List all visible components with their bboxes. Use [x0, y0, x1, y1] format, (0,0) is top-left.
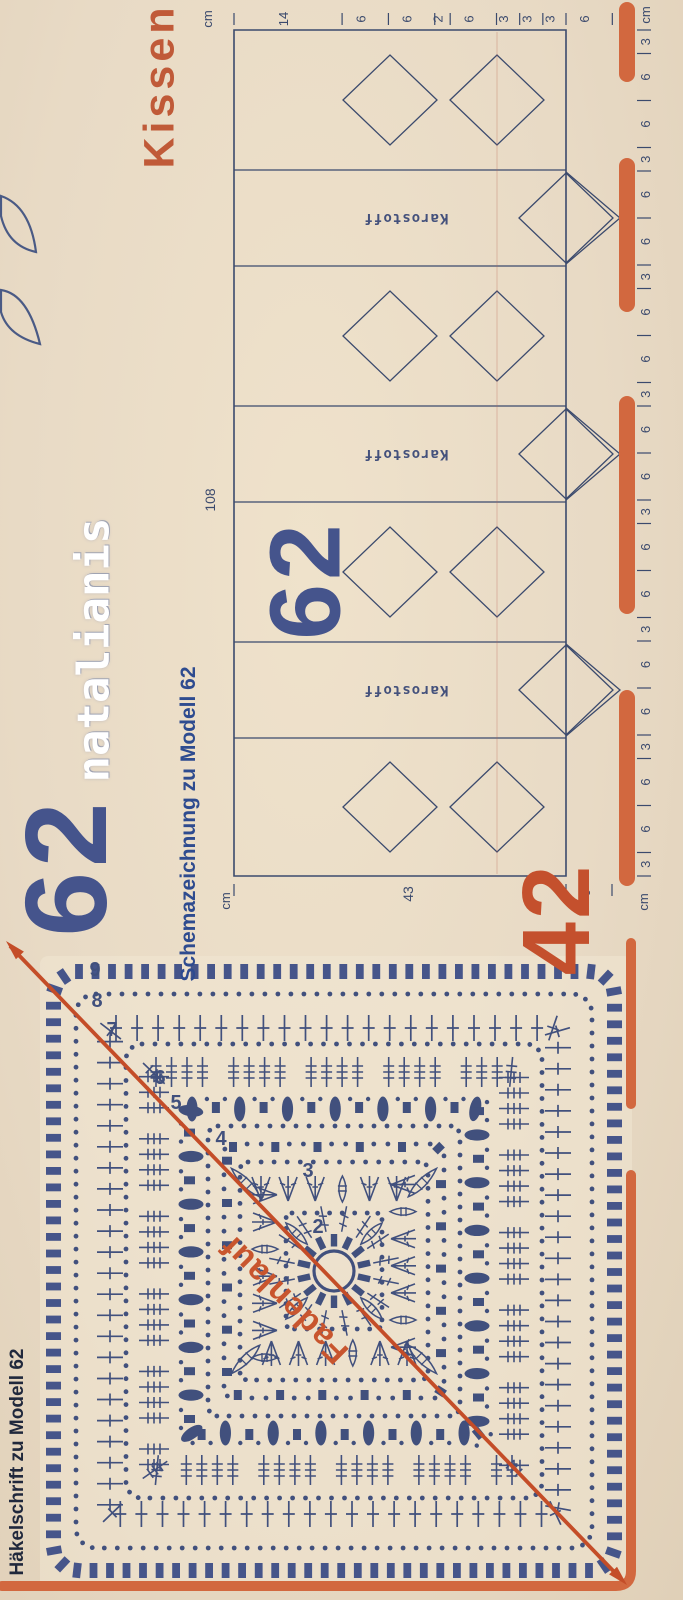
- stitch-symbol: [442, 1154, 447, 1159]
- stitch-symbol: [124, 1195, 129, 1200]
- stitch-symbol: [74, 1143, 79, 1148]
- stitch-symbol: [380, 1305, 385, 1310]
- stitch-symbol: [74, 1403, 79, 1408]
- stitch-symbol: [294, 1124, 299, 1129]
- stitch-symbol: [179, 1246, 204, 1257]
- ruler-label: 6: [638, 355, 653, 362]
- ruler-label: 6: [353, 15, 368, 22]
- stitch-symbol: [238, 1306, 243, 1311]
- stitch-symbol: [590, 1459, 595, 1464]
- stitch-symbol: [74, 1039, 79, 1044]
- stitch-symbol: [433, 1496, 438, 1501]
- stitch-symbol: [359, 1124, 364, 1129]
- stitch-symbol: [590, 1511, 595, 1516]
- stitch-symbol: [405, 964, 413, 979]
- stitch-symbol: [46, 1217, 61, 1225]
- stitch-symbol: [458, 1361, 463, 1366]
- stitch-symbol: [590, 1485, 595, 1490]
- stitch-symbol: [458, 1140, 463, 1145]
- stitch-symbol: [458, 1244, 463, 1249]
- stitch-symbol: [329, 1142, 334, 1147]
- stitch-symbol: [426, 1277, 431, 1282]
- stitch-symbol: [74, 1221, 79, 1226]
- stitch-symbol: [455, 964, 463, 979]
- stitch-symbol: [237, 992, 242, 997]
- stitch-symbol: [540, 1304, 545, 1309]
- ruler-label: 2: [430, 15, 445, 22]
- stitch-symbol: [253, 1414, 258, 1419]
- stitch-symbol: [365, 1211, 370, 1216]
- stitch-symbol: [431, 992, 436, 997]
- stitch-symbol: [74, 1507, 79, 1512]
- stitch-symbol: [590, 1381, 595, 1386]
- ruler-label: 43: [400, 886, 416, 902]
- ruler-label: 3: [638, 861, 653, 868]
- stitch-symbol: [442, 1196, 447, 1201]
- stitch-symbol: [303, 1496, 308, 1501]
- stitch-symbol: [383, 1414, 388, 1419]
- stitch-symbol: [222, 1299, 227, 1304]
- stitch-symbol: [590, 1433, 595, 1438]
- stitch-symbol: [323, 1546, 328, 1551]
- stitch-symbol: [470, 1563, 478, 1578]
- stitch-symbol: [457, 992, 462, 997]
- stitch-symbol: [318, 1414, 323, 1419]
- stitch-symbol: [124, 1415, 129, 1420]
- stitch-symbol: [141, 964, 149, 979]
- stitch-symbol: [220, 1421, 231, 1446]
- stitch-symbol: [371, 1142, 376, 1147]
- stitch-symbol: [316, 1496, 321, 1501]
- round-number: 6: [154, 1067, 165, 1089]
- stitch-symbol: [334, 1396, 339, 1401]
- stitch-symbol: [465, 1273, 490, 1284]
- stitch-symbol: [115, 1546, 120, 1551]
- page-title: Kissen: [136, 3, 185, 168]
- stitch-symbol: [425, 1042, 430, 1047]
- chart-caption: Häkelschrift zu Modell 62: [7, 1348, 29, 1575]
- stitch-symbol: [315, 992, 320, 997]
- stitch-symbol: [185, 992, 190, 997]
- stitch-symbol: [154, 1546, 159, 1551]
- stitch-symbol: [442, 1252, 447, 1257]
- stitch-symbol: [590, 1524, 595, 1529]
- stitch-symbol: [590, 1148, 595, 1153]
- stitch-symbol: [302, 992, 307, 997]
- stitch-symbol: [442, 1337, 447, 1342]
- stitch-symbol: [372, 1378, 377, 1383]
- ruler-label: 6: [638, 661, 653, 668]
- stitch-symbol: [222, 1356, 227, 1361]
- stitch-symbol: [433, 1396, 438, 1401]
- stitch-symbol: [458, 1205, 463, 1210]
- stitch-symbol: [224, 964, 232, 979]
- stitch-symbol: [590, 1044, 595, 1049]
- stitch-symbol: [179, 1199, 204, 1210]
- stitch-symbol: [254, 1378, 259, 1383]
- stitch-symbol: [227, 1414, 232, 1419]
- stitch-symbol: [269, 1042, 274, 1047]
- stitch-symbol: [222, 1313, 227, 1318]
- stitch-symbol: [46, 1018, 61, 1026]
- stitch-symbol: [106, 1563, 114, 1578]
- stitch-symbol: [548, 992, 553, 997]
- stitch-symbol: [540, 1407, 545, 1412]
- stitch-symbol: [222, 1326, 232, 1334]
- stitch-symbol: [540, 1122, 545, 1127]
- stitch-symbol: [375, 1546, 380, 1551]
- stitch-symbol: [607, 1202, 622, 1210]
- stitch-symbol: [146, 992, 151, 997]
- stitch-symbol: [242, 1124, 247, 1129]
- stitch-symbol: [232, 1546, 237, 1551]
- stitch-symbol: [206, 1281, 211, 1286]
- stitch-symbol: [271, 1563, 279, 1578]
- stitch-symbol: [238, 1214, 243, 1219]
- stitch-symbol: [470, 992, 475, 997]
- stitch-symbol: [540, 1472, 545, 1477]
- stitch-symbol: [302, 1211, 307, 1216]
- stitch-symbol: [477, 1042, 482, 1047]
- stitch-symbol: [344, 1414, 349, 1419]
- stitch-symbol: [607, 1516, 622, 1524]
- stitch-symbol: [310, 1546, 315, 1551]
- stitch-symbol: [426, 1343, 431, 1348]
- stitch-symbol: [535, 992, 540, 997]
- stitch-symbol: [557, 1546, 562, 1551]
- stitch-symbol: [243, 1042, 248, 1047]
- stitch-symbol: [287, 1142, 292, 1147]
- stitch-symbol: [268, 1124, 273, 1129]
- stitch-symbol: [199, 1496, 204, 1501]
- stitch-symbol: [442, 1379, 447, 1384]
- stitch-symbol: [46, 1266, 61, 1274]
- stitch-symbol: [607, 1499, 622, 1507]
- stitch-symbol: [292, 1396, 297, 1401]
- stitch-symbol: [124, 1260, 129, 1265]
- stitch-symbol: [238, 1332, 243, 1337]
- stitch-symbol: [206, 1255, 211, 1260]
- stitch-symbol: [74, 1156, 79, 1161]
- stitch-symbol: [590, 1472, 595, 1477]
- stitch-symbol: [359, 1378, 364, 1383]
- stitch-symbol: [124, 1130, 129, 1135]
- stitch-symbol: [206, 1164, 211, 1169]
- stitch-symbol: [276, 1390, 284, 1400]
- ruler-label: 6: [461, 15, 476, 22]
- stitch-symbol: [380, 1217, 385, 1222]
- stitch-symbol: [336, 1546, 341, 1551]
- stitch-symbol: [124, 1337, 129, 1342]
- stitch-symbol: [124, 1182, 129, 1187]
- stitch-symbol: [282, 1042, 287, 1047]
- stitch-symbol: [607, 1417, 622, 1425]
- stitch-symbol: [46, 1530, 61, 1538]
- stitch-symbol: [356, 964, 364, 979]
- stitch-symbol: [124, 1221, 129, 1226]
- stitch-symbol: [290, 1211, 295, 1216]
- stitch-symbol: [354, 1563, 362, 1578]
- stitch-symbol: [206, 1546, 211, 1551]
- stitch-symbol: [448, 1414, 453, 1419]
- stitch-symbol: [531, 1546, 536, 1551]
- stitch-symbol: [74, 1182, 79, 1187]
- stitch-symbol: [166, 1042, 171, 1047]
- stitch-symbol: [46, 1382, 61, 1390]
- stitch-symbol: [281, 1124, 286, 1129]
- round-number: 2: [312, 1216, 323, 1238]
- stitch-symbol: [458, 1400, 463, 1405]
- stitch-symbol: [590, 1355, 595, 1360]
- stitch-symbol: [536, 1563, 544, 1578]
- stitch-symbol: [590, 1394, 595, 1399]
- stitch-symbol: [264, 1396, 269, 1401]
- stitch-symbol: [46, 1283, 61, 1291]
- stitch-symbol: [426, 1290, 431, 1295]
- stitch-symbol: [401, 1546, 406, 1551]
- stitch-symbol: [327, 1211, 332, 1216]
- stitch-symbol: [509, 992, 514, 997]
- stitch-symbol: [189, 1563, 197, 1578]
- stitch-symbol: [440, 1546, 445, 1551]
- stitch-symbol: [381, 1496, 386, 1501]
- stitch-symbol: [280, 1378, 285, 1383]
- stitch-symbol: [205, 1563, 213, 1578]
- stitch-symbol: [367, 1327, 372, 1332]
- stitch-symbol: [179, 1294, 204, 1305]
- stitch-symbol: [120, 992, 125, 997]
- stitch-symbol: [46, 1233, 61, 1241]
- piece-number: 42: [502, 863, 612, 976]
- stitch-symbol: [355, 1327, 360, 1332]
- stitch-symbol: [570, 1546, 575, 1551]
- stitch-symbol: [46, 1349, 61, 1357]
- stitch-symbol: [234, 1097, 245, 1122]
- stitch-symbol: [331, 1414, 336, 1419]
- ruler-label: 6: [638, 426, 653, 433]
- stitch-symbol: [74, 1364, 79, 1369]
- stitch-symbol: [206, 1138, 211, 1143]
- ruler-label: 6: [638, 543, 653, 550]
- stitch-symbol: [124, 1324, 129, 1329]
- stitch-symbol: [266, 1414, 271, 1419]
- stitch-symbol: [389, 1160, 394, 1165]
- stitch-symbol: [458, 1257, 463, 1262]
- ruler-label: 6: [638, 778, 653, 785]
- stitch-symbol: [217, 1042, 222, 1047]
- ruler-label: 3: [638, 156, 653, 163]
- stitch-symbol: [74, 1390, 79, 1395]
- stitch-symbol: [282, 1097, 293, 1122]
- stitch-symbol: [206, 1229, 211, 1234]
- fabric-label: Karostoff: [364, 210, 449, 226]
- round-number: 7: [106, 1019, 117, 1041]
- stitch-symbol: [607, 1466, 622, 1474]
- stitch-symbol: [352, 1211, 357, 1216]
- stitch-symbol: [128, 1546, 133, 1551]
- ruler-label: 14: [276, 12, 291, 26]
- stitch-symbol: [569, 1563, 577, 1578]
- stitch-symbol: [297, 1546, 302, 1551]
- stitch-symbol: [426, 1304, 431, 1309]
- stitch-symbol: [225, 1496, 230, 1501]
- stitch-symbol: [372, 964, 380, 979]
- stitch-symbol: [124, 1363, 129, 1368]
- stitch-symbol: [290, 1496, 295, 1501]
- stitch-symbol: [396, 1414, 401, 1419]
- stitch-symbol: [426, 1186, 431, 1191]
- stitch-symbol: [540, 1381, 545, 1386]
- stitch-symbol: [607, 1219, 622, 1227]
- stitch-symbol: [172, 992, 177, 997]
- stitch-symbol: [590, 1252, 595, 1257]
- stitch-symbol: [74, 1208, 79, 1213]
- stitch-symbol: [329, 1496, 334, 1501]
- stitch-symbol: [424, 1124, 429, 1129]
- stitch-symbol: [240, 964, 248, 979]
- stitch-symbol: [222, 1284, 232, 1292]
- stitch-symbol: [458, 1296, 463, 1301]
- stitch-symbol: [279, 1414, 284, 1419]
- stitch-symbol: [74, 1260, 79, 1265]
- stitch-symbol: [222, 1384, 227, 1389]
- stitch-symbol: [206, 1203, 211, 1208]
- stitch-symbol: [465, 1320, 490, 1331]
- round-number: 8: [91, 990, 102, 1012]
- model-number-large: 62: [0, 797, 133, 936]
- stitch-symbol: [74, 1247, 79, 1252]
- stitch-symbol: [389, 964, 397, 979]
- stitch-symbol: [590, 1226, 595, 1231]
- stitch-symbol: [590, 1018, 595, 1023]
- stitch-symbol: [398, 1378, 403, 1383]
- stitch-symbol: [437, 1124, 442, 1129]
- stitch-symbol: [357, 1414, 362, 1419]
- stitch-symbol: [206, 1372, 211, 1377]
- stitch-symbol: [124, 1312, 129, 1317]
- ruler-label: 6: [638, 825, 653, 832]
- stitch-symbol: [590, 1291, 595, 1296]
- stitch-symbol: [540, 1096, 545, 1101]
- stitch-symbol: [46, 1035, 61, 1043]
- stitch-symbol: [479, 1546, 484, 1551]
- stitch-symbol: [124, 1454, 129, 1459]
- stitch-symbol: [540, 1317, 545, 1322]
- stitch-symbol: [46, 1200, 61, 1208]
- stitch-symbol: [74, 1377, 79, 1382]
- stitch-symbol: [271, 1546, 276, 1551]
- stitch-symbol: [488, 964, 496, 979]
- stitch-symbol: [442, 1294, 447, 1299]
- stitch-symbol: [305, 1414, 310, 1419]
- stitch-symbol: [420, 1496, 425, 1501]
- stitch-symbol: [124, 1247, 129, 1252]
- stitch-symbol: [416, 1160, 421, 1165]
- stitch-symbol: [222, 1271, 227, 1276]
- stitch-symbol: [540, 1394, 545, 1399]
- ruler-label: cm: [218, 892, 233, 909]
- stitch-symbol: [398, 1142, 406, 1152]
- stitch-symbol: [74, 1273, 79, 1278]
- stitch-symbol: [74, 1416, 79, 1421]
- stitch-symbol: [590, 1303, 595, 1308]
- stitch-symbol: [124, 1402, 129, 1407]
- stitch-symbol: [124, 1091, 129, 1096]
- stitch-symbol: [453, 1546, 458, 1551]
- stitch-symbol: [436, 1180, 446, 1188]
- stitch-symbol: [161, 1496, 166, 1501]
- stitch-symbol: [222, 1199, 232, 1207]
- stitch-symbol: [511, 1496, 516, 1501]
- stitch-symbol: [337, 1563, 345, 1578]
- stitch-symbol: [607, 1120, 622, 1128]
- ruler-label: 3: [638, 391, 653, 398]
- stitch-symbol: [333, 1378, 338, 1383]
- stitch-symbol: [124, 1078, 129, 1083]
- stitch-symbol: [607, 1301, 622, 1309]
- stitch-symbol: [193, 1546, 198, 1551]
- stitch-symbol: [607, 1252, 622, 1260]
- stitch-symbol: [153, 1042, 158, 1047]
- stitch-symbol: [451, 1042, 456, 1047]
- stitch-symbol: [74, 1091, 79, 1096]
- stitch-symbol: [458, 1309, 463, 1314]
- stitch-symbol: [74, 1065, 79, 1070]
- stitch-symbol: [307, 1378, 312, 1383]
- stitch-symbol: [295, 1042, 300, 1047]
- stitch-symbol: [186, 1496, 191, 1501]
- stitch-symbol: [206, 1307, 211, 1312]
- stitch-symbol: [124, 1376, 129, 1381]
- stitch-symbol: [74, 1117, 79, 1122]
- stitch-symbol: [343, 1142, 348, 1147]
- stitch-symbol: [74, 1078, 79, 1083]
- stitch-symbol: [206, 1359, 211, 1364]
- stitch-symbol: [206, 1268, 211, 1273]
- stitch-symbol: [446, 1496, 451, 1501]
- stitch-symbol: [376, 1160, 381, 1165]
- stitch-symbol: [179, 1042, 184, 1047]
- stitch-symbol: [453, 1563, 461, 1578]
- stitch-symbol: [503, 1042, 508, 1047]
- stitch-symbol: [540, 1459, 545, 1464]
- stitch-symbol: [607, 1037, 622, 1045]
- stitch-symbol: [124, 1389, 129, 1394]
- stitch-symbol: [198, 992, 203, 997]
- stitch-symbol: [124, 1208, 129, 1213]
- stitch-symbol: [363, 1160, 368, 1165]
- stitch-symbol: [206, 1346, 211, 1351]
- stitch-symbol: [108, 964, 116, 979]
- stitch-symbol: [250, 992, 255, 997]
- stitch-symbol: [238, 1319, 243, 1324]
- stitch-symbol: [411, 1378, 416, 1383]
- stitch-symbol: [540, 1433, 545, 1438]
- stitch-symbol: [259, 1142, 264, 1147]
- stitch-symbol: [426, 1264, 431, 1269]
- ruler-label: cm: [638, 6, 653, 23]
- stitch-symbol: [540, 1070, 545, 1075]
- stitch-symbol: [607, 1483, 622, 1491]
- stitch-symbol: [222, 1563, 230, 1578]
- stitch-symbol: [540, 1368, 545, 1373]
- stitch-symbol: [518, 1546, 523, 1551]
- stitch-symbol: [330, 1097, 341, 1122]
- stitch-symbol: [590, 1239, 595, 1244]
- stitch-symbol: [284, 1546, 289, 1551]
- stitch-symbol: [222, 1341, 227, 1346]
- stitch-symbol: [74, 1169, 79, 1174]
